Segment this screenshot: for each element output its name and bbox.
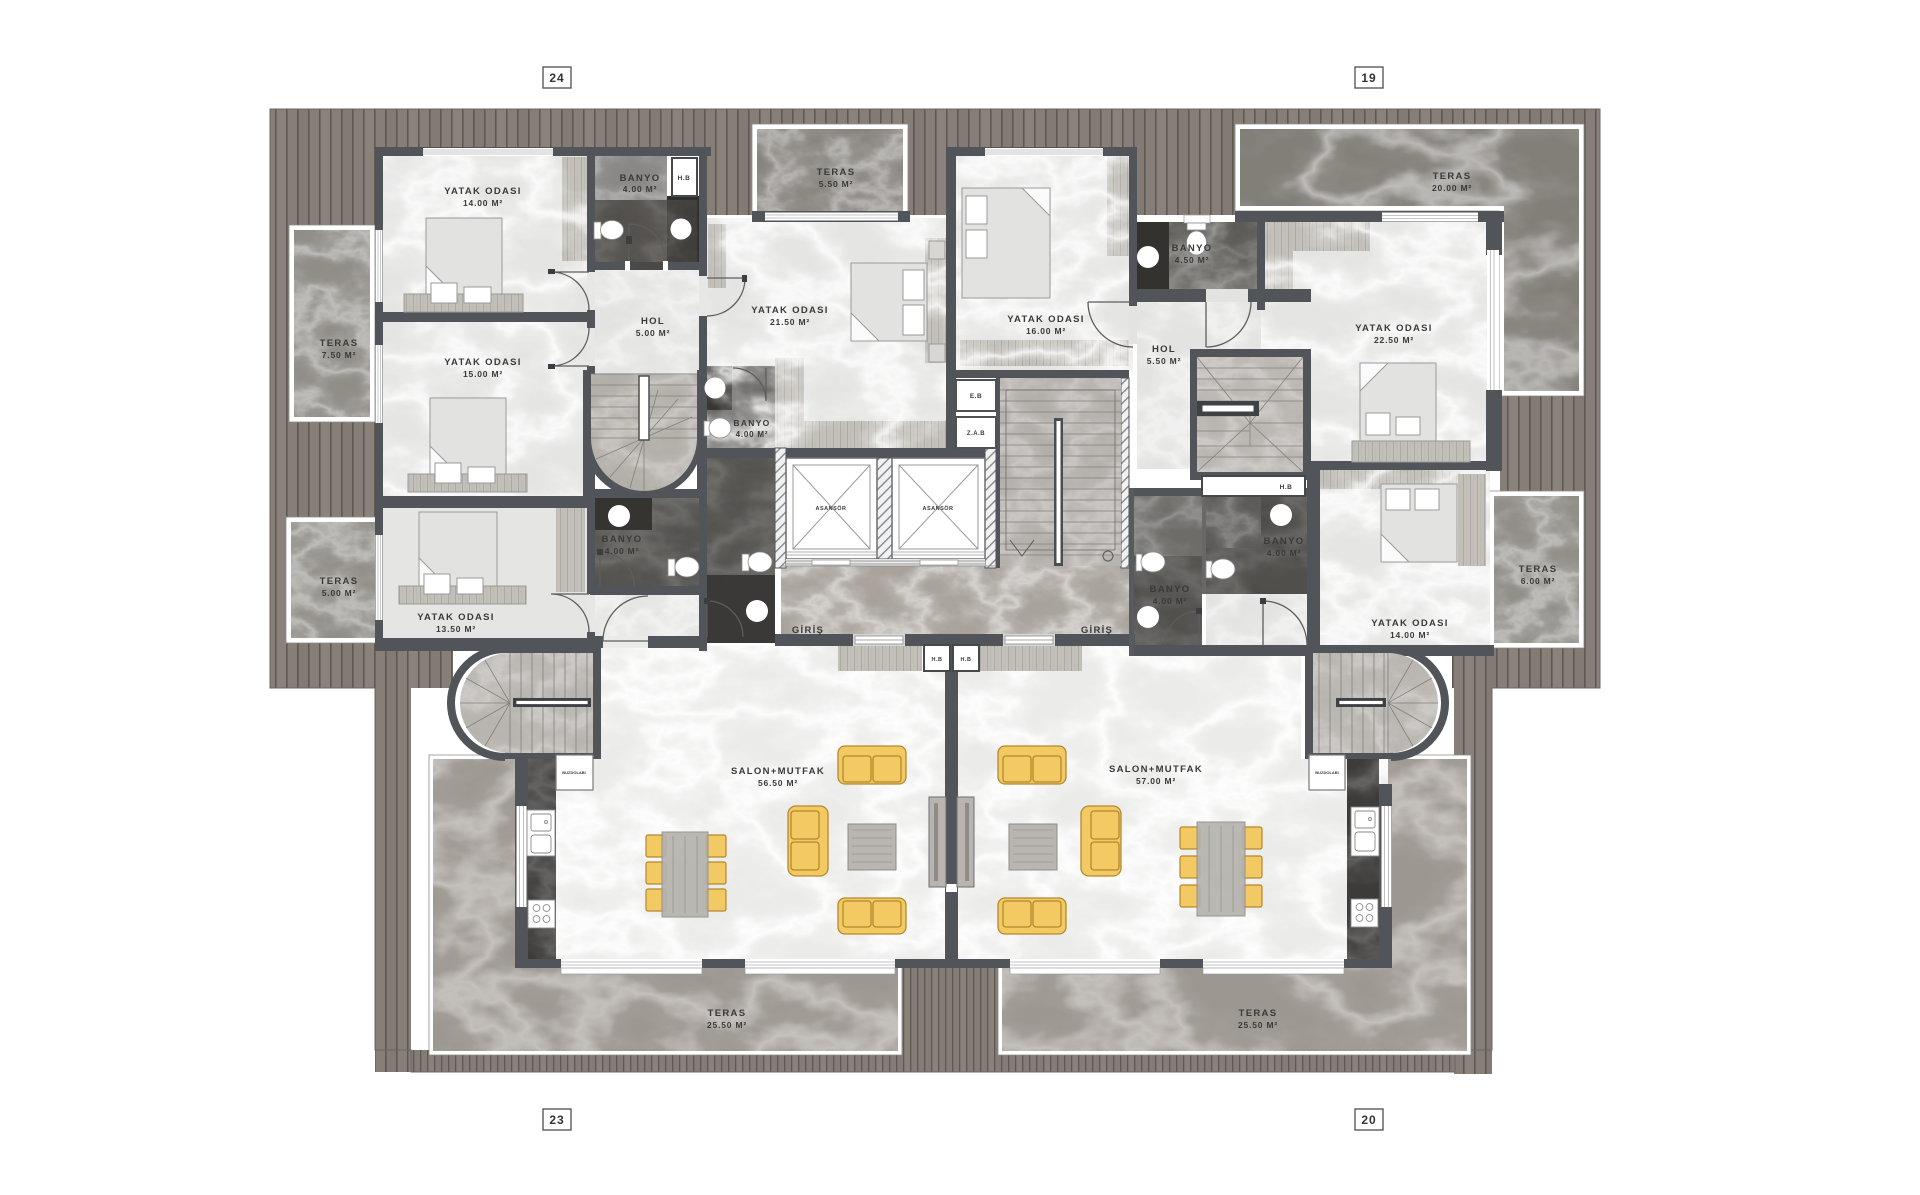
svg-text:H.B: H.B xyxy=(932,657,943,663)
svg-text:25.50 M²: 25.50 M² xyxy=(707,1020,747,1030)
svg-text:24: 24 xyxy=(549,71,564,85)
svg-text:BANYO: BANYO xyxy=(733,418,770,428)
svg-text:TERAS: TERAS xyxy=(320,576,359,587)
svg-text:20: 20 xyxy=(1361,1113,1376,1127)
svg-text:BANYO: BANYO xyxy=(620,173,661,184)
svg-text:TERAS: TERAS xyxy=(1433,171,1472,182)
svg-text:4.00 M²: 4.00 M² xyxy=(1267,548,1301,558)
svg-text:YATAK ODASI: YATAK ODASI xyxy=(1355,323,1432,334)
svg-text:BANYO: BANYO xyxy=(1264,536,1305,547)
svg-text:YATAK ODASI: YATAK ODASI xyxy=(1371,618,1448,629)
svg-text:5.00 M²: 5.00 M² xyxy=(322,588,356,598)
svg-text:HOL: HOL xyxy=(641,316,665,327)
svg-text:23: 23 xyxy=(549,1113,564,1127)
svg-text:BANYO: BANYO xyxy=(1150,584,1191,595)
svg-text:YATAK ODASI: YATAK ODASI xyxy=(417,612,494,623)
svg-text:21.50 M²: 21.50 M² xyxy=(770,317,810,327)
svg-text:TERAS: TERAS xyxy=(817,167,856,178)
svg-text:6.00 M²: 6.00 M² xyxy=(1521,576,1555,586)
svg-text:GİRİŞ: GİRİŞ xyxy=(792,625,824,636)
svg-text:ASANSÖR: ASANSÖR xyxy=(922,505,953,512)
svg-text:7.50 M²: 7.50 M² xyxy=(322,350,356,360)
svg-text:5.50 M²: 5.50 M² xyxy=(1147,356,1181,366)
svg-text:H.B: H.B xyxy=(1280,484,1293,491)
svg-text:16.00 M²: 16.00 M² xyxy=(1026,326,1066,336)
svg-text:BANYO: BANYO xyxy=(1172,243,1213,254)
svg-text:4.00 M²: 4.00 M² xyxy=(623,184,657,194)
svg-text:BUZDOLABI: BUZDOLABI xyxy=(562,770,586,775)
svg-text:4.00 M²: 4.00 M² xyxy=(728,588,762,598)
svg-text:TERAS: TERAS xyxy=(320,338,359,349)
svg-text:SALON+MUTFAK: SALON+MUTFAK xyxy=(731,766,825,777)
svg-text:19: 19 xyxy=(1361,71,1376,85)
svg-text:TERAS: TERAS xyxy=(1519,564,1558,575)
svg-text:YATAK ODASI: YATAK ODASI xyxy=(444,186,521,197)
svg-text:56.50 M²: 56.50 M² xyxy=(758,778,798,788)
svg-text:BUZDOLABI: BUZDOLABI xyxy=(1315,770,1339,775)
svg-text:YATAK ODASI: YATAK ODASI xyxy=(444,357,521,368)
svg-text:SALON+MUTFAK: SALON+MUTFAK xyxy=(1109,764,1203,775)
svg-text:4.00 M²: 4.00 M² xyxy=(605,546,639,556)
svg-text:GİRİŞ: GİRİŞ xyxy=(1081,625,1113,636)
svg-text:22.50 M²: 22.50 M² xyxy=(1374,335,1414,345)
svg-text:HOL: HOL xyxy=(1152,344,1176,355)
svg-text:4.50 M²: 4.50 M² xyxy=(1175,255,1209,265)
svg-text:4.00 M²: 4.00 M² xyxy=(736,430,769,439)
svg-text:57.00 M²: 57.00 M² xyxy=(1136,776,1176,786)
svg-text:14.00 M²: 14.00 M² xyxy=(463,198,503,208)
svg-text:4.00 M²: 4.00 M² xyxy=(1153,596,1187,606)
svg-text:5.00 M²: 5.00 M² xyxy=(636,328,670,338)
svg-text:H.B: H.B xyxy=(678,175,691,182)
svg-text:5.50 M²: 5.50 M² xyxy=(819,179,853,189)
svg-text:Z.A.B: Z.A.B xyxy=(967,431,985,437)
svg-text:H.B: H.B xyxy=(961,657,972,663)
svg-text:ASANSÖR: ASANSÖR xyxy=(815,505,846,512)
svg-text:YATAK ODASI: YATAK ODASI xyxy=(751,305,828,316)
svg-text:15.00 M²: 15.00 M² xyxy=(463,369,503,379)
svg-text:BANYO: BANYO xyxy=(725,576,766,587)
svg-text:14.00 M²: 14.00 M² xyxy=(1390,630,1430,640)
svg-text:BANYO: BANYO xyxy=(602,534,643,545)
svg-text:13.50 M²: 13.50 M² xyxy=(436,624,476,634)
svg-text:25.50 M²: 25.50 M² xyxy=(1238,1020,1278,1030)
svg-text:YATAK ODASI: YATAK ODASI xyxy=(1007,314,1084,325)
svg-text:20.00 M²: 20.00 M² xyxy=(1432,183,1472,193)
svg-text:TERAS: TERAS xyxy=(1239,1008,1278,1019)
svg-text:TERAS: TERAS xyxy=(708,1008,747,1019)
svg-text:E.B: E.B xyxy=(970,393,982,400)
